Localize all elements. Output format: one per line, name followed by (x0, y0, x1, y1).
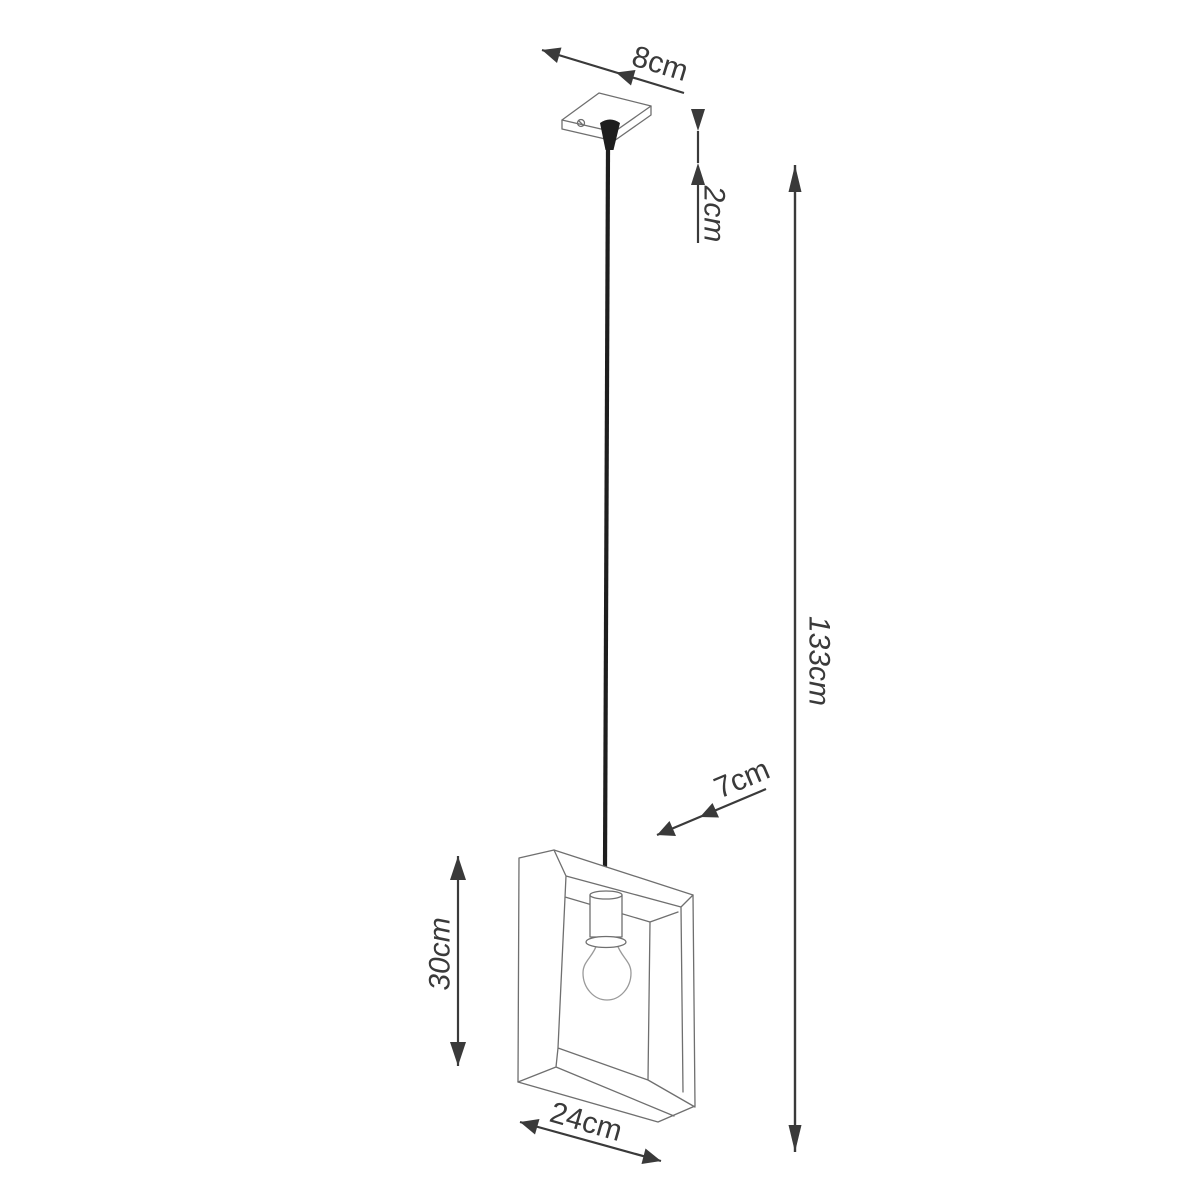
dimension-drawing: 8cm 2cm 133cm 7cm 30c (0, 0, 1200, 1200)
bulb-socket (590, 891, 622, 937)
dimension-canopy-width: 8cm (542, 40, 692, 93)
arrowhead-icon (691, 163, 705, 185)
socket-body (590, 895, 622, 937)
dimension-shade-height: 30cm (424, 856, 467, 1066)
ceiling-canopy (562, 93, 651, 150)
arrowhead-icon (450, 856, 466, 880)
arrowhead-icon (542, 48, 562, 64)
socket-top (590, 891, 622, 899)
socket-flange (586, 937, 626, 948)
pendant-lamp-diagram: 8cm 2cm 133cm 7cm 30c (0, 0, 1200, 1200)
shade-height-label: 30cm (424, 917, 457, 990)
shade-depth-label: 7cm (709, 753, 774, 806)
drop-length-label: 133cm (803, 616, 836, 706)
canopy-height-label: 2cm (698, 185, 731, 243)
dimension-shade-depth: 7cm (657, 753, 775, 836)
arrowhead-icon (642, 1149, 662, 1165)
arrowhead-icon (450, 1042, 466, 1066)
dimension-drop-length: 133cm (789, 165, 836, 1152)
arrowhead-icon (520, 1119, 540, 1135)
suspension-cable (605, 150, 608, 868)
dimension-canopy-height: 2cm (691, 109, 731, 243)
arrowhead-icon (691, 109, 705, 131)
arrowhead-icon (789, 165, 802, 192)
cord-grip (600, 120, 620, 151)
arrowhead-icon (789, 1125, 802, 1152)
frame-shade (518, 850, 695, 1122)
canopy-width-label: 8cm (628, 40, 692, 88)
